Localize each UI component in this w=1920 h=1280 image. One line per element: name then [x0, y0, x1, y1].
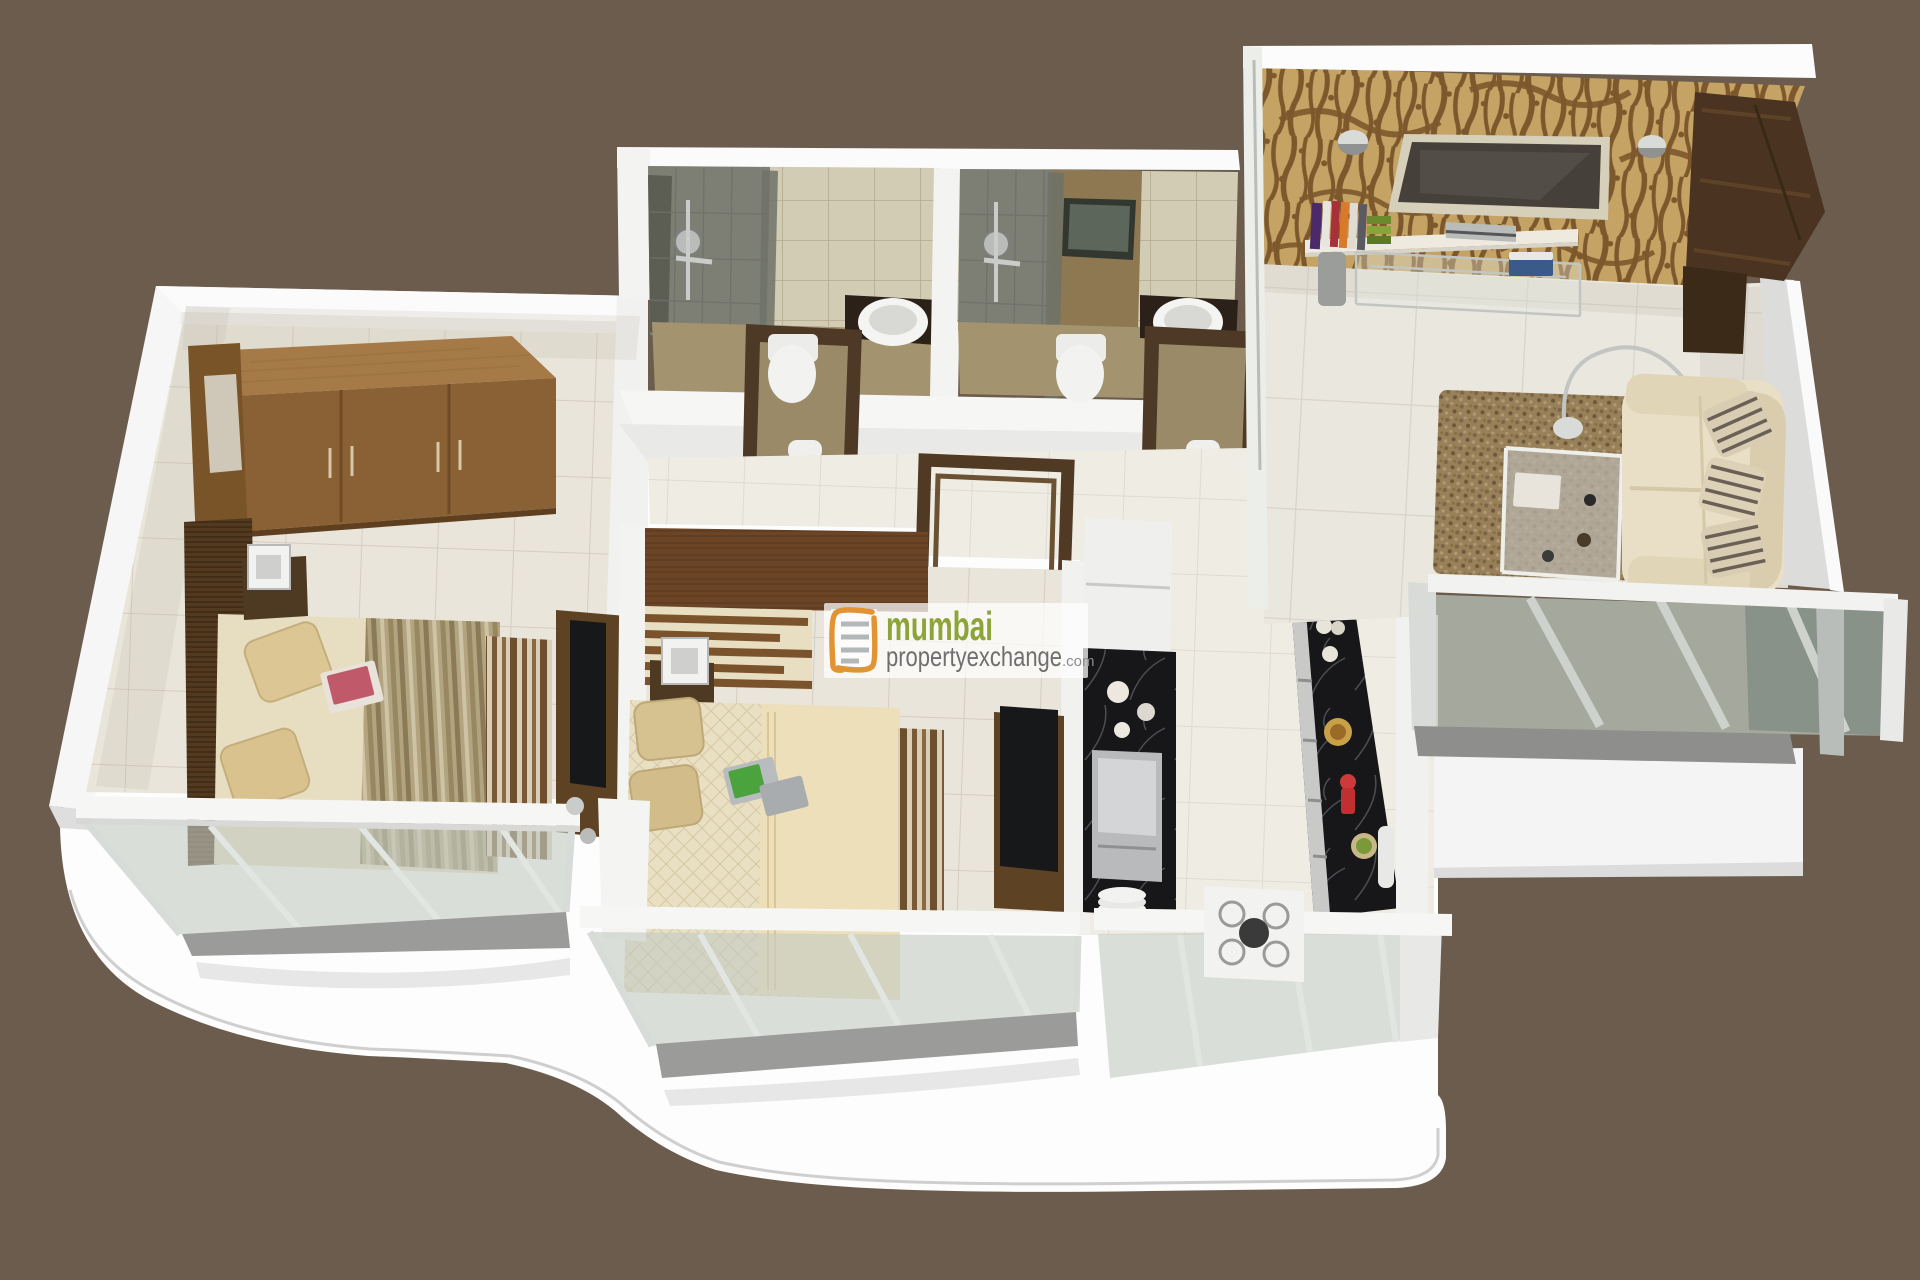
svg-text:propertyexchange: propertyexchange — [886, 641, 1062, 672]
svg-text:.com: .com — [1062, 653, 1095, 670]
